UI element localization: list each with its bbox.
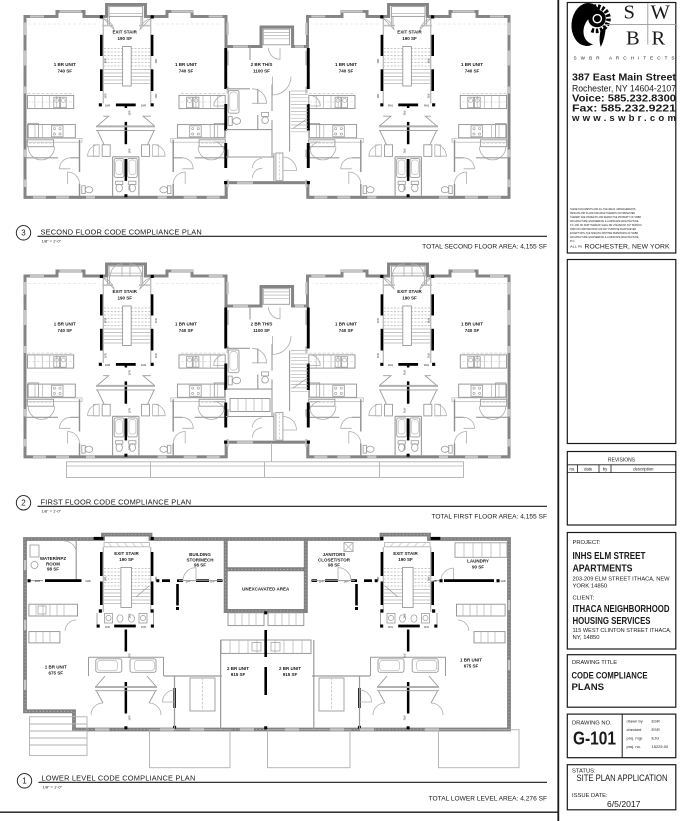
svg-text:ALL RI: ALL RI	[570, 245, 582, 249]
svg-text:2 BR UNIT: 2 BR UNIT	[227, 666, 249, 671]
svg-text:Rochester, NY 14604-2107: Rochester, NY 14604-2107	[572, 84, 676, 94]
svg-text:ITHACA NEIGHBORHOOD: ITHACA NEIGHBORHOOD	[573, 604, 670, 615]
svg-text:ESR: ESR	[652, 719, 660, 724]
svg-text:UNEXCAVATED AREA: UNEXCAVATED AREA	[242, 587, 290, 592]
svg-text:DRAWING NO.: DRAWING NO.	[572, 720, 612, 726]
svg-text:APARTMENTS: APARTMENTS	[573, 564, 633, 575]
svg-text:SECOND FLOOR CODE COMPLIANCE P: SECOND FLOOR CODE COMPLIANCE PLAN	[41, 227, 202, 236]
svg-text:6/5/2017: 6/5/2017	[607, 799, 641, 809]
svg-text:1FP: 1FP	[186, 579, 191, 583]
svg-text:387 East Main Street: 387 East Main Street	[572, 73, 677, 84]
svg-text:1/8" = 1'-0": 1/8" = 1'-0"	[42, 238, 62, 243]
svg-text:EJG: EJG	[652, 736, 660, 741]
svg-text:date: date	[584, 467, 593, 472]
svg-text:CLOSET/STOR: CLOSET/STOR	[318, 557, 351, 562]
svg-text:2: 2	[21, 499, 26, 508]
svg-text:checked: checked	[627, 727, 642, 732]
svg-text:1 BR UNIT: 1 BR UNIT	[460, 658, 482, 663]
svg-text:2HR: 2HR	[35, 579, 40, 583]
svg-text:90 SF: 90 SF	[472, 565, 484, 570]
svg-text:98 SF: 98 SF	[194, 563, 206, 568]
svg-text:B: B	[626, 28, 640, 50]
svg-text:203-209 ELM STREET ITHACA, NEW: 203-209 ELM STREET ITHACA, NEW	[573, 577, 670, 583]
svg-text:675 SF: 675 SF	[464, 663, 479, 668]
svg-text:EXIT STAIR: EXIT STAIR	[393, 551, 418, 556]
svg-text:EXIT STAIR: EXIT STAIR	[114, 551, 139, 556]
svg-text:YORK 14850: YORK 14850	[573, 584, 608, 590]
svg-text:915 SF: 915 SF	[283, 672, 298, 677]
svg-text:3: 3	[21, 229, 26, 238]
svg-text:ISSUE DATE:: ISSUE DATE:	[572, 793, 608, 799]
svg-text:R: R	[652, 28, 666, 50]
svg-text:190 SF: 190 SF	[398, 557, 413, 562]
svg-text:1HR: 1HR	[500, 579, 505, 583]
svg-text:1FP: 1FP	[210, 579, 215, 583]
svg-text:TOTAL LOWER LEVEL AREA: 4,276: TOTAL LOWER LEVEL AREA: 4,276 SF	[429, 795, 547, 802]
svg-text:2 BR UNIT: 2 BR UNIT	[279, 666, 301, 671]
svg-text:BUILDING: BUILDING	[189, 552, 211, 557]
svg-text:proj. no.: proj. no.	[627, 744, 641, 749]
svg-text:SITE PLAN APPLICATION: SITE PLAN APPLICATION	[577, 773, 668, 783]
svg-text:PLANS: PLANS	[572, 682, 605, 693]
svg-text:LOWER LEVEL CODE COMPLIANCE PL: LOWER LEVEL CODE COMPLIANCE PLAN	[42, 773, 196, 782]
svg-text:ROOM: ROOM	[46, 561, 60, 566]
svg-text:DRAWING TITLE: DRAWING TITLE	[572, 660, 617, 666]
svg-text:FIRST FLOOR CODE COMPLIANCE PL: FIRST FLOOR CODE COMPLIANCE PLAN	[41, 497, 192, 506]
svg-text:proj. mgr.: proj. mgr.	[627, 736, 644, 741]
svg-text:1: 1	[22, 777, 27, 786]
svg-text:LAUNDRY: LAUNDRY	[467, 559, 489, 564]
svg-text:P.C.: P.C.	[570, 239, 576, 243]
svg-text:115 WEST CLINTON STREET ITHACA: 115 WEST CLINTON STREET ITHACA,	[573, 628, 672, 634]
svg-text:1FP: 1FP	[344, 579, 349, 583]
svg-text:ARCHITECTURE, ENGINEERING & LA: ARCHITECTURE, ENGINEERING & LANDSCAPE AR…	[570, 235, 639, 239]
svg-text:915 SF: 915 SF	[231, 672, 246, 677]
svg-text:REVISIONS: REVISIONS	[608, 457, 636, 463]
svg-text:STOR/MECH: STOR/MECH	[187, 557, 214, 562]
svg-text:190 SF: 190 SF	[119, 557, 134, 562]
svg-text:ESR: ESR	[652, 727, 660, 732]
svg-text:WATER/RPZ: WATER/RPZ	[40, 556, 66, 561]
svg-text:JANITORS: JANITORS	[323, 552, 346, 557]
svg-text:1/8" = 1'-0": 1/8" = 1'-0"	[43, 784, 63, 789]
svg-text:HOUSING SERVICES: HOUSING SERVICES	[573, 616, 651, 627]
svg-text:675 SF: 675 SF	[48, 670, 63, 675]
svg-text:1 BR UNIT: 1 BR UNIT	[45, 665, 67, 670]
svg-text:S: S	[624, 2, 635, 24]
svg-text:S W B R A R C H I T E C T S: S W B R A R C H I T E C T S	[574, 56, 675, 61]
svg-text:15225.00: 15225.00	[652, 744, 669, 749]
svg-text:CLIENT:: CLIENT:	[573, 596, 595, 602]
svg-text:1HR: 1HR	[431, 579, 436, 583]
svg-text:1FP: 1FP	[319, 579, 324, 583]
svg-text:TOTAL FIRST FLOOR AREA: 4,155: TOTAL FIRST FLOOR AREA: 4,155 SF	[431, 513, 547, 520]
svg-text:drawn by: drawn by	[627, 719, 643, 724]
svg-text:W: W	[651, 2, 671, 24]
svg-text:1/8" = 1'-0": 1/8" = 1'-0"	[42, 508, 62, 513]
svg-text:NY, 14850: NY, 14850	[573, 635, 601, 641]
svg-text:www.swbr.com: www.swbr.com	[571, 113, 676, 124]
svg-text:PROJECT:: PROJECT:	[573, 540, 601, 546]
svg-text:description: description	[633, 467, 654, 472]
svg-text:G-101: G-101	[573, 729, 616, 749]
svg-text:TOTAL SECOND FLOOR AREA: 4,155: TOTAL SECOND FLOOR AREA: 4,155 SF	[422, 243, 547, 250]
svg-text:98 SF: 98 SF	[328, 563, 340, 568]
svg-text:98 SF: 98 SF	[47, 567, 59, 572]
svg-text:CODE COMPLIANCE: CODE COMPLIANCE	[572, 670, 648, 681]
svg-text:2HR: 2HR	[85, 579, 90, 583]
svg-text:ROCHESTER, NEW YORK: ROCHESTER, NEW YORK	[585, 244, 670, 251]
svg-text:no.: no.	[569, 467, 575, 472]
svg-text:INHS ELM STREET: INHS ELM STREET	[573, 551, 646, 562]
